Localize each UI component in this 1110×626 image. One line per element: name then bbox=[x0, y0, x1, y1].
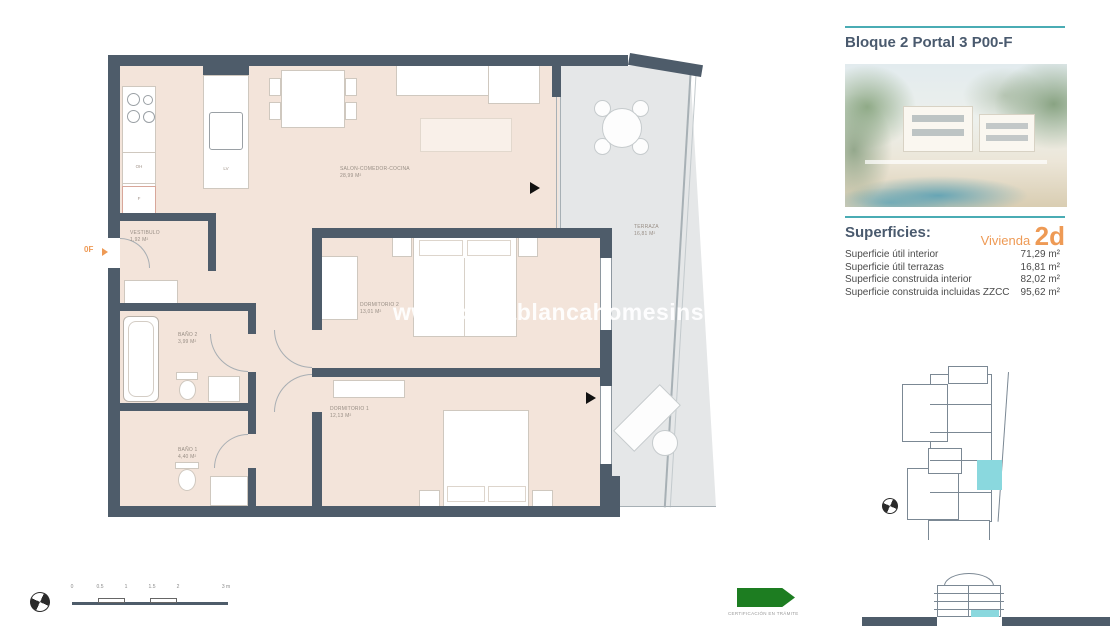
table-row: Superficie útil interior71,29 m² bbox=[845, 249, 1060, 262]
room-label-terraza: TERRAZA16,81 m² bbox=[634, 224, 659, 237]
view-marker-icon bbox=[530, 182, 540, 194]
table-row: Superficie construida interior82,02 m² bbox=[845, 274, 1060, 287]
compass-icon bbox=[879, 495, 900, 516]
wardrobe-bedroom1 bbox=[333, 380, 405, 398]
wall-vestibulo-right bbox=[208, 213, 216, 271]
room-label-vestibulo: VESTIBULO1,92 m² bbox=[130, 230, 160, 243]
scale-bar-segment bbox=[98, 598, 125, 603]
toilet-tank bbox=[176, 372, 198, 380]
compass-icon bbox=[27, 589, 54, 616]
building-render-image bbox=[845, 64, 1067, 207]
terrace-side-table bbox=[652, 430, 678, 456]
toilet-bowl bbox=[178, 469, 196, 491]
nightstand bbox=[419, 490, 440, 507]
dining-chair bbox=[345, 78, 357, 96]
dining-chair bbox=[345, 102, 357, 120]
ground-bar bbox=[862, 617, 937, 626]
site-plan-shape bbox=[902, 384, 948, 442]
room-label-salon: SALON-COMEDOR-COCINA28,99 m² bbox=[340, 166, 410, 179]
room-label-bano1: BAÑO 14,40 m² bbox=[178, 447, 198, 460]
floor-line bbox=[934, 593, 1004, 594]
room-label-dormitorio1: DORMITORIO 112,13 m² bbox=[330, 406, 369, 419]
cooktop-burner bbox=[143, 111, 155, 123]
wall-right-a bbox=[600, 232, 612, 258]
pillow bbox=[488, 486, 526, 502]
wardrobe-bedroom2 bbox=[320, 256, 358, 320]
site-plan-line bbox=[930, 492, 992, 493]
terrace-table bbox=[602, 108, 642, 148]
highlighted-unit-elevation bbox=[971, 610, 999, 617]
site-plan-shape bbox=[907, 468, 959, 520]
nightstand bbox=[532, 490, 553, 507]
wall-bath-divider bbox=[108, 403, 256, 411]
rug bbox=[420, 118, 512, 152]
wall-living-stub bbox=[552, 63, 561, 97]
entrance-label: 0F bbox=[84, 245, 93, 254]
dining-table bbox=[281, 70, 345, 128]
site-plan-shape bbox=[928, 520, 990, 540]
window-bedroom1 bbox=[600, 386, 612, 464]
site-plan-line bbox=[930, 404, 992, 405]
dining-chair bbox=[269, 78, 281, 96]
wall-bottom bbox=[108, 506, 620, 517]
bath1-sink bbox=[210, 476, 248, 506]
superficies-heading: Superficies: bbox=[845, 224, 931, 241]
wall-bedroom-divider bbox=[312, 368, 612, 377]
wall-corridor-left-c bbox=[248, 468, 256, 507]
wall-left bbox=[108, 55, 120, 517]
kitchen-sink bbox=[209, 112, 243, 150]
energy-certificate-arrow-icon bbox=[737, 588, 795, 607]
wall-corridor-right-a bbox=[312, 238, 322, 330]
site-plan-line bbox=[930, 432, 992, 433]
oven-label: OH bbox=[122, 164, 156, 169]
terrace-edge-bottom bbox=[618, 506, 716, 507]
sofa-chaise bbox=[488, 62, 540, 104]
certification-label: CERTIFICACIÓN EN TRÁMITE bbox=[728, 611, 808, 616]
room-label-bano2: BAÑO 23,99 m² bbox=[178, 332, 198, 345]
wall-corridor-right-b bbox=[312, 412, 322, 507]
page-title: Bloque 2 Portal 3 P00-F bbox=[845, 34, 1013, 51]
sink-label: LV bbox=[203, 166, 249, 171]
pool-edge bbox=[865, 160, 1047, 164]
building-shape bbox=[903, 106, 973, 152]
pillow bbox=[419, 240, 463, 256]
wall-corridor-left-b bbox=[248, 372, 256, 434]
site-plan-shape bbox=[948, 366, 988, 384]
cooktop-burner bbox=[127, 93, 140, 106]
wall-vestibulo-top bbox=[108, 213, 216, 221]
wall-terrace-stub bbox=[606, 476, 620, 508]
view-marker-icon bbox=[586, 392, 596, 404]
wall-corridor-left-a bbox=[248, 306, 256, 334]
elevation-roof bbox=[944, 573, 994, 586]
site-plan-shape bbox=[928, 448, 962, 474]
wall-top bbox=[108, 55, 570, 66]
divider-line-superficies bbox=[845, 216, 1065, 218]
table-row: Superficie construida incluidas ZZCC95,6… bbox=[845, 287, 1060, 300]
table-row: Superficie útil terrazas16,81 m² bbox=[845, 262, 1060, 275]
wall-living-bedroom2 bbox=[312, 228, 612, 238]
floor-line bbox=[934, 601, 1004, 602]
entrance-arrow-icon bbox=[102, 248, 108, 256]
watermark: www.costablancahomesinspain.com bbox=[393, 299, 809, 326]
ground-bar bbox=[1002, 617, 1110, 626]
elevation-vline bbox=[968, 585, 969, 617]
divider-line-top bbox=[845, 26, 1065, 28]
nightstand bbox=[392, 237, 412, 257]
wall-island-stub bbox=[203, 63, 249, 75]
wall-bath2-top bbox=[108, 303, 256, 311]
superficies-table: Superficie útil interior71,29 m² Superfi… bbox=[845, 249, 1060, 299]
pillow bbox=[447, 486, 485, 502]
brochure-page: OH F LV bbox=[0, 0, 1110, 626]
vivienda-label: Vivienda 2d bbox=[981, 221, 1065, 252]
building-shape bbox=[979, 114, 1035, 152]
highlighted-unit bbox=[977, 460, 1002, 490]
site-plan-boundary bbox=[998, 372, 1009, 522]
bathtub-inner bbox=[128, 321, 154, 397]
fridge-label: F bbox=[122, 196, 156, 201]
scale-bar-segment bbox=[150, 598, 177, 603]
cooktop-burner bbox=[127, 110, 140, 123]
wall-top-terrace bbox=[570, 55, 628, 66]
toilet-tank bbox=[175, 462, 199, 469]
cooktop-burner bbox=[143, 95, 153, 105]
wall-right-b bbox=[600, 330, 612, 386]
nightstand bbox=[518, 237, 538, 257]
entrance-door-gap bbox=[108, 238, 120, 268]
toilet-bowl bbox=[179, 380, 196, 400]
dining-chair bbox=[269, 102, 281, 120]
bath2-sink bbox=[208, 376, 240, 402]
pillow bbox=[467, 240, 511, 256]
